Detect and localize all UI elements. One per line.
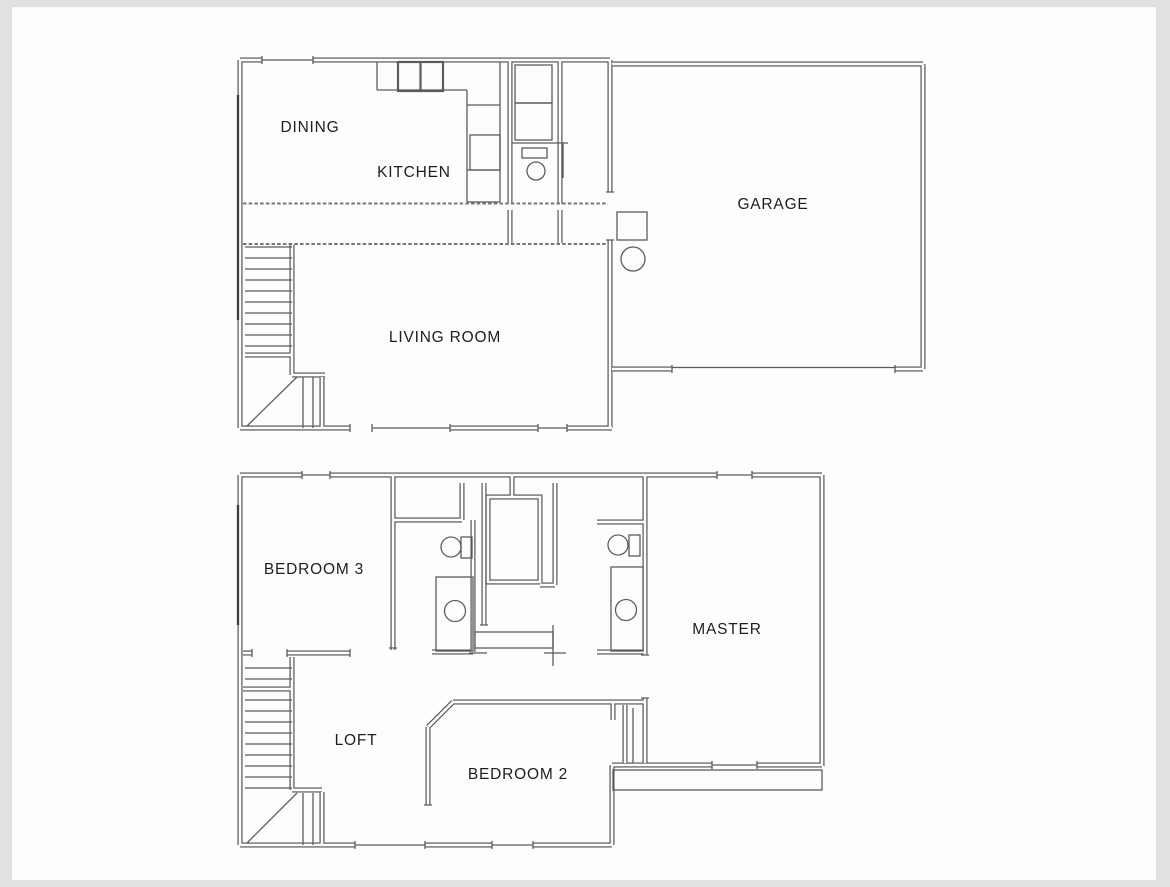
floorplan-screenshot: DINING KITCHEN GARAGE LIVING ROOM: [0, 0, 1170, 887]
overhang-dashed-lines: [243, 204, 608, 245]
second-floor-plan: BEDROOM 3 MASTER LOFT BEDROOM 2: [238, 471, 822, 849]
second-floor-windows: [302, 471, 757, 849]
vanity-symbol: [436, 577, 473, 651]
kitchen-counter-symbol: [377, 62, 500, 202]
master-bathroom-fixtures: [608, 535, 643, 651]
toilet-tank-symbol: [461, 537, 472, 558]
kitchen-sink-symbol: [398, 62, 443, 91]
room-label-loft: LOFT: [335, 732, 378, 749]
hall-bathroom-fixtures: [436, 537, 473, 651]
deck-outline: [613, 770, 822, 790]
stairs-symbol: [245, 668, 313, 845]
room-label-bedroom2: BEDROOM 2: [468, 766, 568, 783]
room-label-kitchen: KITCHEN: [377, 164, 451, 181]
range-symbol: [470, 135, 500, 170]
toilet-symbol: [608, 535, 628, 555]
washer-dryer-symbol: [515, 65, 552, 140]
sink-symbol: [616, 600, 637, 621]
room-label-master: MASTER: [692, 621, 761, 638]
toilet-symbol: [527, 162, 545, 180]
room-label-garage: GARAGE: [737, 196, 808, 213]
toilet-tank-symbol: [629, 535, 640, 556]
sink-symbol: [522, 148, 547, 158]
first-floor-plan: DINING KITCHEN GARAGE LIVING ROOM: [238, 56, 923, 432]
water-heater-symbol: [617, 212, 647, 271]
stairs-symbol: [245, 247, 313, 428]
room-label-dining: DINING: [280, 119, 339, 136]
room-label-living-room: LIVING ROOM: [389, 329, 501, 346]
stair-railing-symbol: [469, 625, 566, 666]
floorplan-drawing: DINING KITCHEN GARAGE LIVING ROOM: [0, 0, 1170, 887]
toilet-symbol: [441, 537, 461, 557]
sink-symbol: [445, 601, 466, 622]
room-label-bedroom3: BEDROOM 3: [264, 561, 364, 578]
